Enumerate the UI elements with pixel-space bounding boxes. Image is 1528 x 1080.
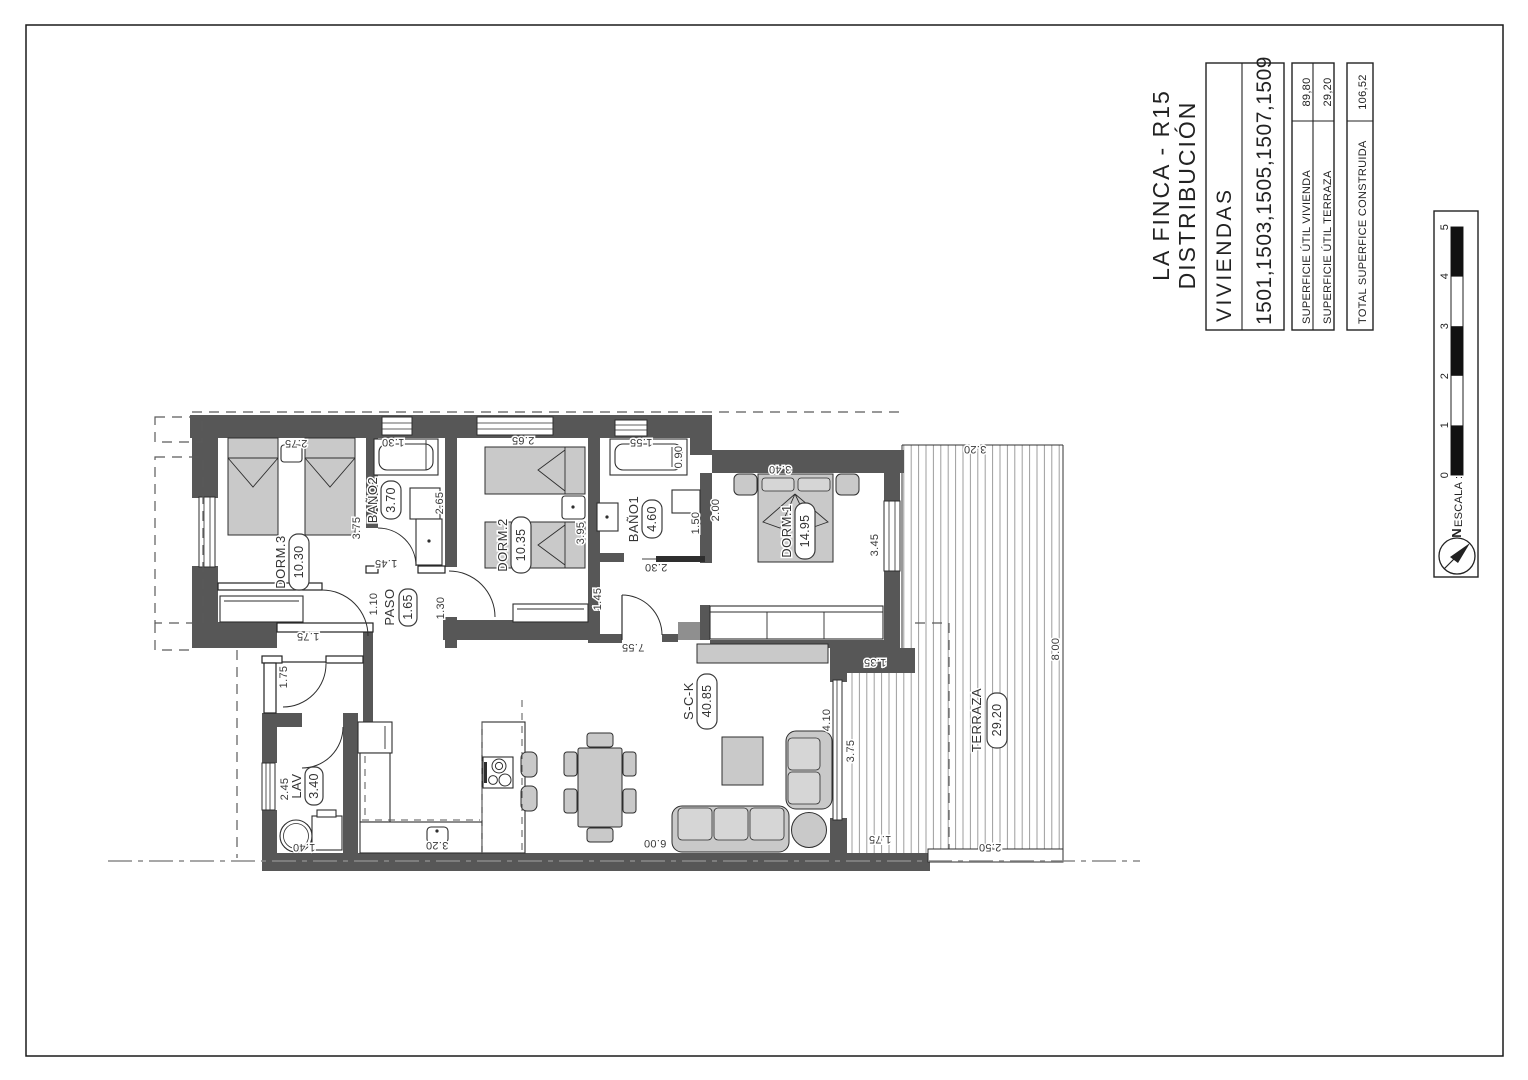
- dim-label: 2.50: [979, 841, 1002, 853]
- scale-tick: 0: [1439, 472, 1451, 478]
- room-area: 10.30: [292, 546, 306, 579]
- dim-label: 3.75: [845, 740, 857, 763]
- room-area: 1.65: [401, 594, 415, 620]
- room-name: PASO: [382, 588, 397, 625]
- sideboard: [697, 644, 828, 663]
- wardrobe: [710, 606, 883, 639]
- drawing-sheet: DORM.3 10.30 BAÑO2 3.70 DORM.2 10.35 BAÑ…: [0, 0, 1528, 1080]
- floor-plan-canvas: DORM.3 10.30 BAÑO2 3.70 DORM.2 10.35 BAÑ…: [0, 0, 1528, 1080]
- area-value: 29,20: [1322, 77, 1334, 106]
- dim-label: 1.10: [368, 593, 380, 616]
- dim-label: 2.75: [285, 437, 308, 449]
- dim-label: 3.45: [869, 534, 881, 557]
- doors: [282, 528, 662, 768]
- area-label: SUPERFICIE ÚTIL TERRAZA: [1321, 170, 1334, 324]
- wardrobe: [513, 604, 588, 622]
- adjacent-unit-dashed: [155, 623, 192, 650]
- dim-label: 1.35: [864, 656, 887, 668]
- cushion: [714, 808, 748, 840]
- dim-label: 7.55: [622, 641, 645, 653]
- chair: [623, 789, 636, 813]
- room-area: 4.60: [645, 506, 659, 532]
- scale-bar: [1451, 227, 1463, 475]
- room-name: DORM.2: [495, 518, 510, 572]
- window-lav: [262, 763, 275, 810]
- cooktop: [483, 757, 513, 788]
- window-bano1: [615, 420, 647, 436]
- cushion: [788, 738, 820, 770]
- chair: [587, 828, 613, 842]
- scale-tick: 5: [1439, 224, 1451, 230]
- room-area: 10.35: [514, 529, 528, 562]
- cushion: [788, 772, 820, 804]
- dim-label: 1.45: [375, 557, 398, 569]
- dining-set: [564, 733, 636, 842]
- total-label: TOTAL SUPERFICE CONSTRUIDA: [1357, 140, 1369, 324]
- dining-table: [578, 748, 622, 827]
- dim-label: 3.75: [351, 517, 363, 540]
- dorm1-furniture: [710, 474, 883, 639]
- room-area: 3.40: [307, 773, 321, 799]
- dim-label: 0.90: [673, 446, 685, 469]
- project-title: LA FINCA - R15: [1148, 89, 1174, 281]
- dim-label: 3.40: [769, 463, 792, 475]
- dim-label: 2.65: [512, 434, 535, 446]
- pillow: [762, 478, 794, 491]
- drawing-title: DISTRIBUCIÓN: [1174, 101, 1200, 290]
- room-label-dorm1: DORM.1 14.95: [779, 503, 815, 559]
- window-dorm2: [477, 417, 553, 435]
- room-name: TERRAZA: [969, 688, 984, 752]
- room-label-sck: S-C-K 40.85: [681, 674, 717, 729]
- coffee-table: [722, 737, 763, 785]
- cushion: [678, 808, 712, 840]
- living-set: [672, 644, 832, 852]
- nightstand: [836, 474, 859, 495]
- dim-label: 3.20: [426, 839, 449, 851]
- chair: [587, 733, 613, 747]
- dim-label: 1.55: [630, 436, 653, 448]
- room-label-paso: PASO 1.65: [382, 588, 417, 626]
- room-name: S-C-K: [681, 682, 696, 720]
- bar-stool: [521, 752, 537, 777]
- dim-label: 2.00: [710, 499, 722, 522]
- room-label-lav: LAV 3.40: [289, 767, 323, 805]
- room-label-terraza: TERRAZA 29.20: [969, 688, 1007, 752]
- kitchen: [358, 700, 537, 853]
- north-label: N: [1449, 528, 1464, 537]
- north-arrow: N: [1439, 528, 1475, 574]
- scale-tick: 3: [1439, 323, 1451, 329]
- dim-label: 1.30: [435, 597, 447, 620]
- counter-bottom: [360, 822, 482, 853]
- scale-tick: 1: [1439, 422, 1451, 428]
- chair: [623, 752, 636, 776]
- scale-label: ESCALA :: [1453, 476, 1465, 527]
- room-label-bano2: BAÑO2 3.70: [365, 477, 401, 524]
- room-area: 14.95: [798, 515, 812, 548]
- area-value: 89,80: [1301, 77, 1313, 106]
- scale-tick: 2: [1439, 373, 1451, 379]
- dryer: [312, 816, 342, 850]
- viviendas-label: VIVIENDAS: [1213, 187, 1236, 322]
- dim-label: 1.75: [869, 833, 892, 845]
- window-bano2: [382, 417, 412, 435]
- room-area: 29.20: [990, 704, 1004, 737]
- total-value: 106,52: [1357, 74, 1369, 109]
- dim-label: 6.00: [644, 837, 667, 849]
- toilet: [672, 490, 700, 513]
- scale-block: 5 4 3 2 1 0 ESCALA : N: [1434, 211, 1478, 577]
- room-area: 3.70: [384, 487, 398, 513]
- dim-label: 3.20: [964, 443, 987, 455]
- cushion: [750, 808, 784, 840]
- window-dorm1: [884, 501, 900, 571]
- room-name: BAÑO1: [626, 496, 641, 543]
- chair: [564, 789, 577, 813]
- dorm2-door-arc: [449, 571, 495, 617]
- dorm3-furniture: [220, 438, 355, 622]
- window-dorm3: [199, 497, 215, 567]
- dim-label: 1.75: [278, 666, 290, 689]
- pillow: [798, 478, 830, 491]
- faucet: [427, 539, 430, 542]
- dim-label: 2.65: [434, 492, 446, 515]
- nightstand: [734, 474, 757, 495]
- dim-label: 1.45: [592, 588, 604, 611]
- title-block: LA FINCA - R15 DISTRIBUCIÓN VIVIENDAS 15…: [1148, 56, 1373, 330]
- lav-door-arc: [302, 727, 343, 768]
- sliding-glass-door: [833, 680, 842, 820]
- room-name: LAV: [289, 773, 304, 798]
- hall-door-arc: [622, 595, 662, 635]
- dim-label: 3.95: [575, 522, 587, 545]
- viviendas-numbers: 1501,1503,1505,1507,1509: [1253, 56, 1276, 325]
- side-table: [792, 813, 827, 848]
- room-area: 40.85: [700, 685, 714, 718]
- area-label: SUPERFICIE ÚTIL VIVIENDA: [1300, 170, 1313, 324]
- chair: [564, 752, 577, 776]
- wardrobe: [220, 596, 303, 622]
- room-label-bano1: BAÑO1 4.60: [626, 496, 662, 543]
- dim-label: 1.30: [382, 436, 405, 448]
- dim-label: 1.50: [690, 512, 702, 535]
- scale-tick: 4: [1439, 273, 1451, 279]
- room-label-dorm3: DORM.3 10.30: [273, 534, 309, 590]
- bar-stool: [521, 786, 537, 811]
- dim-label: 8.00: [1050, 638, 1062, 661]
- room-name: DORM.1: [779, 504, 794, 558]
- dim-label: 2.45: [279, 778, 291, 801]
- dim-label: 2.30: [645, 561, 668, 573]
- tall-cabinet: [358, 722, 392, 753]
- dim-label: 1.75: [297, 630, 320, 642]
- dim-label: 1.40: [293, 841, 316, 853]
- room-label-dorm2: DORM.2 10.35: [495, 517, 531, 573]
- room-name: DORM.3: [273, 535, 288, 589]
- room-name: BAÑO2: [365, 477, 380, 524]
- faucet: [605, 515, 608, 518]
- dim-label: 4.10: [821, 709, 833, 732]
